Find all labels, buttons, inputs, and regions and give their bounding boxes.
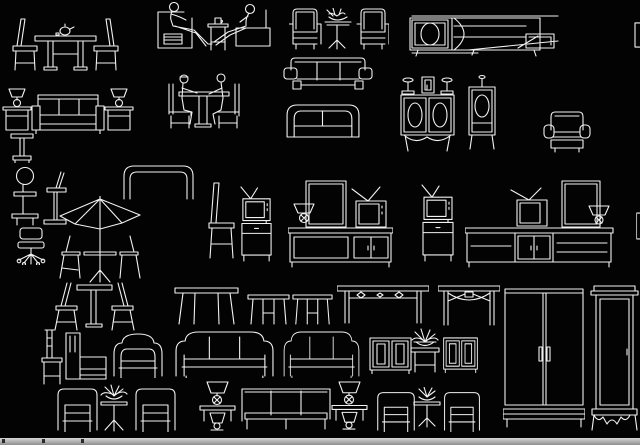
block-office-swivel-chair[interactable] (17, 228, 45, 266)
block-club-armchair[interactable] (544, 112, 590, 152)
block-table-with-two-chairs[interactable] (55, 283, 134, 330)
block-plant-pedestal-table[interactable] (101, 385, 127, 431)
block-two-armchairs-round-table[interactable] (289, 8, 389, 49)
block-dresser-mirror-tv-set[interactable] (288, 181, 393, 267)
block-small-cabinet[interactable] (444, 338, 478, 373)
block-lounge-armchair[interactable] (58, 389, 97, 432)
block-rounded-sofa-three-seat[interactable] (284, 332, 359, 378)
block-three-seat-bench[interactable] (242, 389, 330, 429)
block-lamp-on-stand[interactable] (332, 382, 367, 429)
block-small-table[interactable] (293, 295, 332, 324)
block-clipped-block-right[interactable] (635, 23, 640, 47)
block-lamp-on-stand[interactable] (200, 382, 235, 430)
block-tv-on-cabinet[interactable] (241, 187, 271, 261)
cad-window (0, 0, 640, 445)
furniture-blocks-layer (0, 0, 640, 438)
block-plant-round-table[interactable] (414, 387, 440, 427)
block-tall-stool[interactable] (44, 172, 66, 224)
block-round-back-stool[interactable] (12, 168, 38, 226)
status-strip (0, 438, 640, 445)
block-console-table-arched-apron[interactable] (438, 286, 500, 325)
block-curved-bench[interactable] (124, 166, 193, 199)
block-small-cabinet[interactable] (370, 338, 411, 374)
block-lounge-armchair[interactable] (378, 393, 415, 432)
block-wardrobe-two-door[interactable] (503, 289, 585, 427)
block-small-table[interactable] (248, 295, 289, 324)
block-dresser-mirror-tv-set-wide[interactable] (465, 181, 613, 267)
block-plant-on-table[interactable] (411, 329, 439, 372)
strip-tick (81, 439, 84, 443)
block-wardrobe-with-cornice[interactable] (591, 286, 638, 430)
cad-drawing-canvas[interactable] (0, 0, 640, 438)
block-ladder-back-chair[interactable] (42, 330, 62, 384)
strip-tick (2, 439, 5, 443)
block-dining-table-two-chairs[interactable] (13, 19, 118, 70)
block-console-table-diamond-apron[interactable] (337, 286, 429, 323)
block-cabinet-oval-doors[interactable] (401, 77, 454, 151)
block-sofa-with-lamp-tables[interactable] (3, 89, 133, 134)
block-sofa-two-seat[interactable] (287, 105, 359, 137)
block-tv-on-cabinet[interactable] (422, 185, 453, 261)
block-side-chair[interactable] (209, 183, 234, 258)
block-rounded-armchair[interactable] (114, 334, 162, 378)
block-long-dining-table[interactable] (175, 288, 238, 324)
block-lounge-armchair[interactable] (136, 389, 175, 432)
strip-tick (42, 439, 45, 443)
block-sofa-three-seat[interactable] (284, 58, 372, 89)
block-boxy-armchair[interactable] (66, 333, 106, 379)
block-rounded-sofa-three-seat[interactable] (176, 332, 273, 378)
block-pedestal-stool[interactable] (11, 134, 33, 163)
block-tv-sideboard-long[interactable] (410, 16, 558, 56)
block-cabinet-single-oval[interactable] (469, 76, 495, 150)
block-patio-umbrella-table-set[interactable] (60, 196, 140, 282)
block-lounge-armchair[interactable] (445, 393, 480, 432)
block-people-seated-armchair-scene[interactable] (158, 3, 270, 51)
block-two-people-at-table[interactable] (169, 74, 239, 128)
